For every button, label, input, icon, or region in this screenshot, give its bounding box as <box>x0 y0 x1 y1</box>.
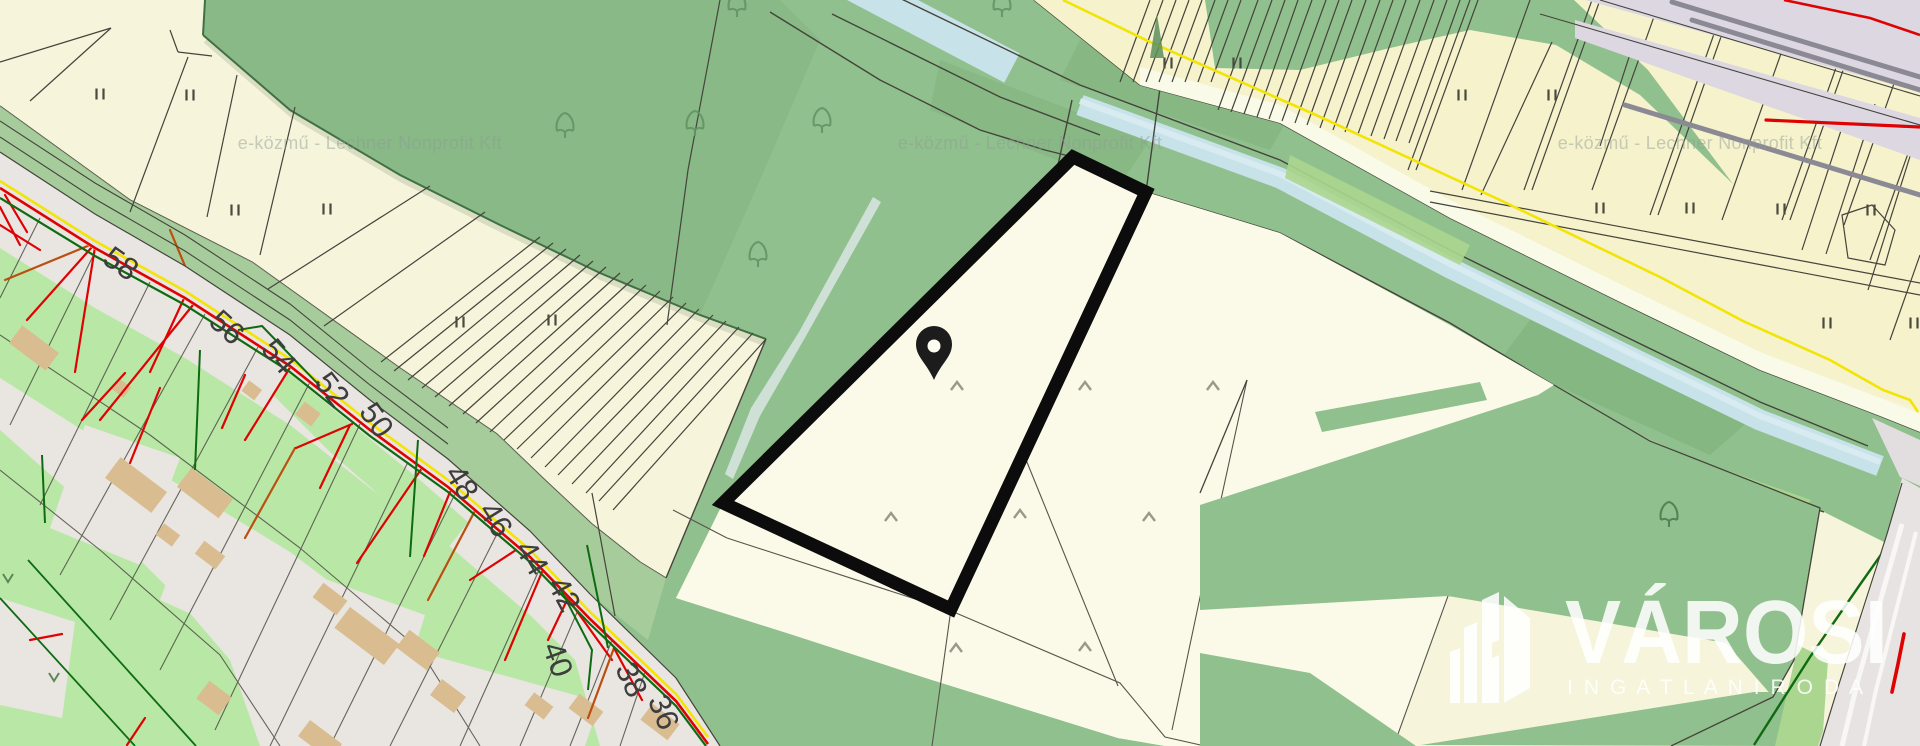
svg-text:e-közmű - Lechner Nonprofit Kf: e-közmű - Lechner Nonprofit Kft <box>238 133 502 153</box>
svg-text:e-közmű - Lechner Nonprofit Kf: e-közmű - Lechner Nonprofit Kft <box>1558 133 1822 153</box>
svg-text:I N G A T L A N I R O D A: I N G A T L A N I R O D A <box>1567 676 1863 699</box>
svg-text:VÁROSI: VÁROSI <box>1565 582 1888 683</box>
svg-text:e-közmű - Lechner Nonprofit Kf: e-közmű - Lechner Nonprofit Kft <box>898 133 1162 153</box>
